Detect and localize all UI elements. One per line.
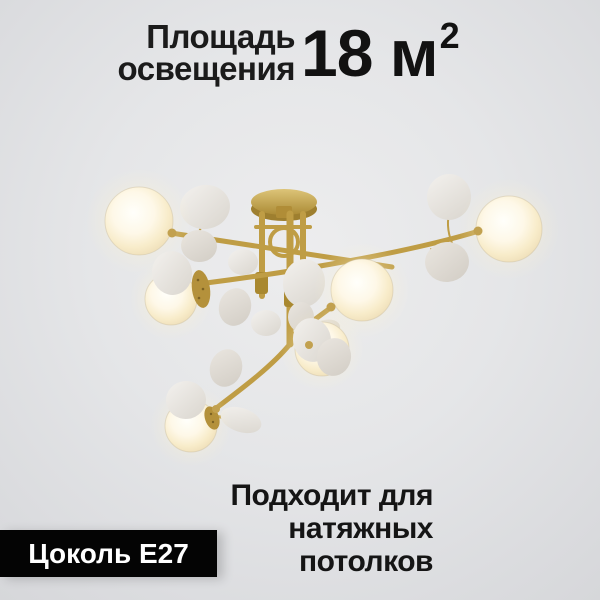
socket-badge-label: Цоколь E27 [28, 538, 189, 570]
product-card: Площадь освещения 18 м 2 [0, 0, 600, 600]
socket-badge: Цоколь E27 [0, 530, 217, 577]
glass-globes [86, 168, 560, 467]
suitable-text: Подходит для натяжных потолков [230, 479, 433, 578]
suitable-line2: натяжных [230, 512, 433, 545]
suitable-line3: потолков [230, 545, 433, 578]
suitable-line1: Подходит для [230, 479, 433, 512]
